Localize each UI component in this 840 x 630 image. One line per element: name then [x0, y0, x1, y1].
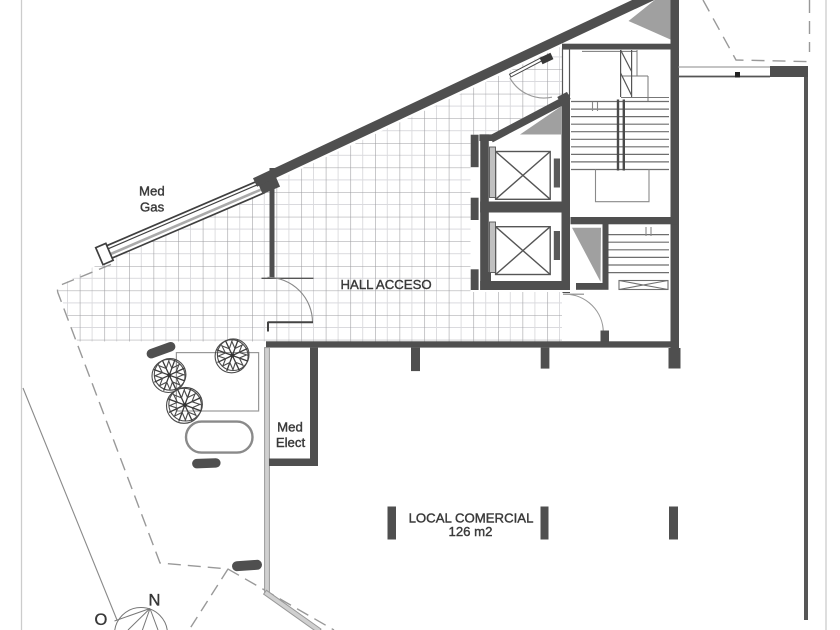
svg-text:Gas: Gas — [140, 200, 165, 215]
svg-text:N: N — [149, 592, 161, 610]
svg-text:HALL ACCESO: HALL ACCESO — [341, 277, 432, 292]
svg-text:126 m2: 126 m2 — [449, 524, 493, 539]
svg-text:Elect: Elect — [276, 435, 306, 450]
svg-text:Med: Med — [277, 420, 303, 435]
svg-text:Med: Med — [139, 184, 165, 199]
svg-text:O: O — [95, 611, 108, 629]
